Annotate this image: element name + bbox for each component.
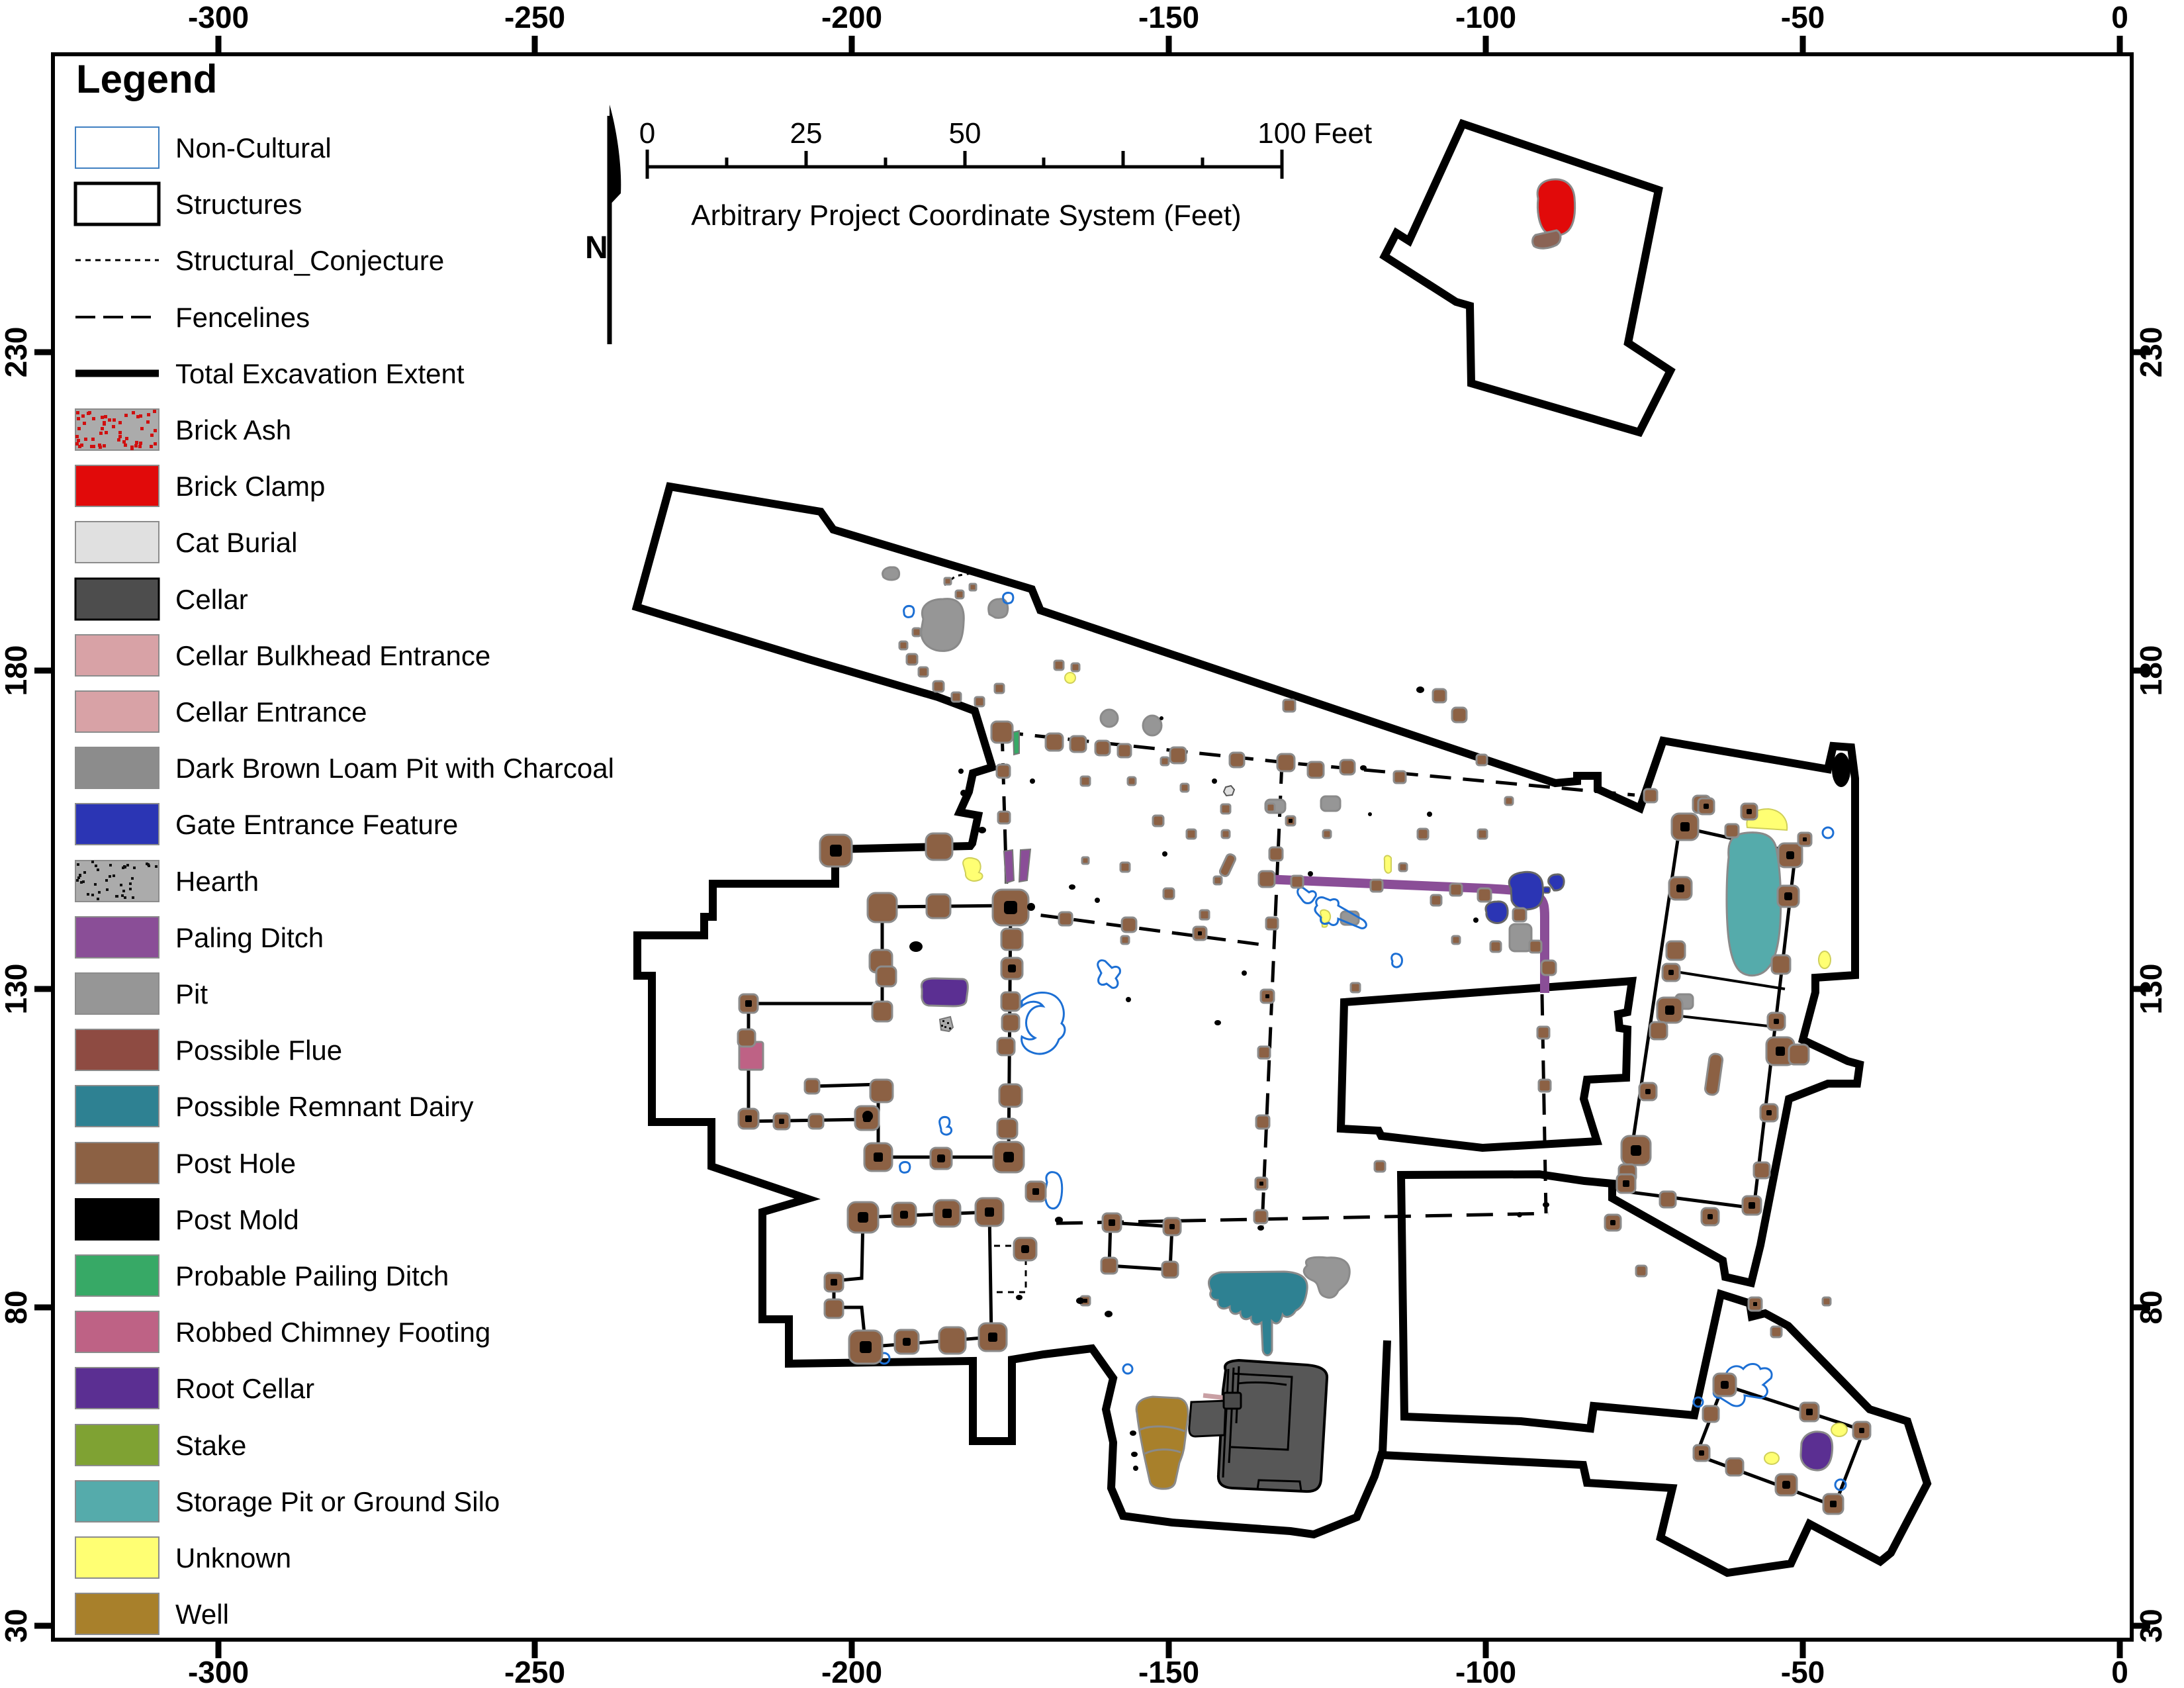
svg-text:Unknown: Unknown [175,1542,291,1573]
svg-text:Cellar Entrance: Cellar Entrance [175,696,367,727]
svg-text:Structural_Conjecture: Structural_Conjecture [175,245,444,276]
svg-text:-150: -150 [1138,1655,1199,1688]
svg-text:-200: -200 [821,0,882,34]
svg-text:Gate Entrance Feature: Gate Entrance Feature [175,809,458,840]
svg-text:N: N [585,230,608,265]
svg-text:-100: -100 [1455,1655,1516,1688]
svg-text:Post Mold: Post Mold [175,1204,299,1235]
svg-text:Cat Burial: Cat Burial [175,527,297,558]
svg-text:Root Cellar: Root Cellar [175,1373,314,1404]
svg-text:-200: -200 [821,1655,882,1688]
svg-text:Pit: Pit [175,978,208,1009]
svg-text:80: 80 [0,1290,33,1324]
svg-text:50: 50 [949,117,981,150]
svg-text:Cellar: Cellar [175,584,248,615]
svg-text:-250: -250 [504,0,565,34]
svg-text:Robbed Chimney Footing: Robbed Chimney Footing [175,1317,490,1348]
svg-text:Well: Well [175,1599,229,1630]
svg-text:0: 0 [639,117,655,150]
svg-text:Possible Remnant Dairy: Possible Remnant Dairy [175,1091,474,1122]
svg-text:30: 30 [2134,1609,2168,1642]
svg-text:130: 130 [0,964,33,1015]
svg-text:Fencelines: Fencelines [175,302,310,333]
svg-text:-50: -50 [1781,0,1825,34]
svg-text:Arbitrary Project Coordinate S: Arbitrary Project Coordinate System (Fee… [691,199,1241,232]
svg-text:Total Excavation Extent: Total Excavation Extent [175,358,465,389]
svg-text:Structures: Structures [175,189,302,220]
svg-text:0: 0 [2111,1655,2128,1688]
svg-text:-150: -150 [1138,0,1199,34]
svg-text:Brick Ash: Brick Ash [175,414,291,445]
svg-text:Legend: Legend [76,57,217,101]
svg-text:0: 0 [2111,0,2128,34]
svg-text:Cellar Bulkhead Entrance: Cellar Bulkhead Entrance [175,640,490,671]
svg-text:Hearth: Hearth [175,866,259,897]
svg-text:130: 130 [2134,964,2168,1015]
svg-text:Non-Cultural: Non-Cultural [175,132,332,164]
svg-text:30: 30 [0,1609,33,1642]
svg-text:Feet: Feet [1314,117,1372,150]
svg-text:180: 180 [0,645,33,696]
svg-text:Probable Pailing Ditch: Probable Pailing Ditch [175,1260,449,1291]
svg-text:-300: -300 [188,1655,249,1688]
svg-text:230: 230 [0,327,33,378]
svg-text:-100: -100 [1455,0,1516,34]
svg-text:Paling Ditch: Paling Ditch [175,922,324,953]
svg-text:80: 80 [2134,1290,2168,1324]
svg-text:Post Hole: Post Hole [175,1148,296,1179]
svg-text:Stake: Stake [175,1430,246,1461]
svg-text:Storage Pit or Ground Silo: Storage Pit or Ground Silo [175,1486,500,1517]
svg-text:Brick Clamp: Brick Clamp [175,471,325,502]
svg-text:Possible Flue: Possible Flue [175,1035,342,1066]
svg-text:-250: -250 [504,1655,565,1688]
svg-text:100: 100 [1257,117,1306,150]
svg-text:230: 230 [2134,327,2168,378]
svg-text:-50: -50 [1781,1655,1825,1688]
svg-text:25: 25 [790,117,823,150]
svg-text:180: 180 [2134,645,2168,696]
svg-text:-300: -300 [188,0,249,34]
svg-text:Dark Brown Loam Pit with Charc: Dark Brown Loam Pit with Charcoal [175,753,614,784]
